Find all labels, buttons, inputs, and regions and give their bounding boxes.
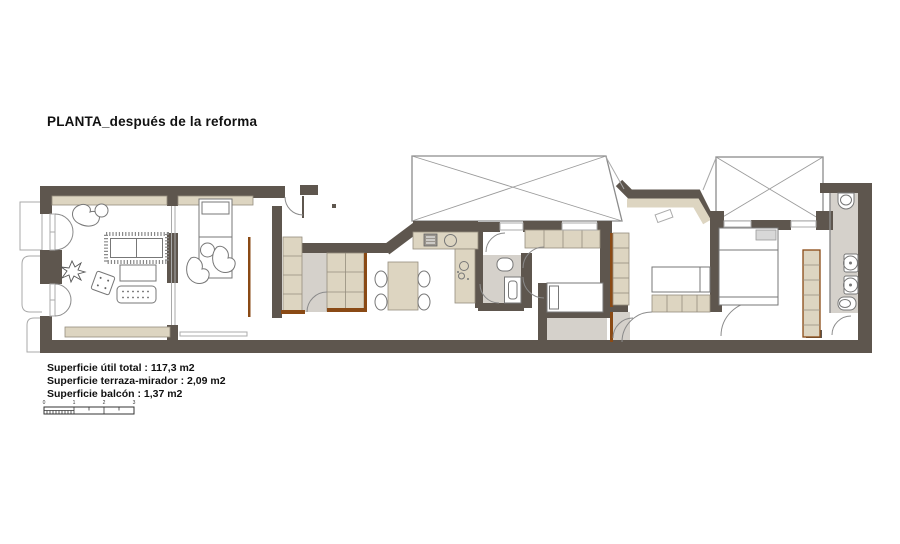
bedroom1-furniture xyxy=(187,199,236,283)
legend-line-terraza: Superficie terraza-mirador : 2,09 m2 xyxy=(47,375,226,388)
pouf xyxy=(91,271,115,295)
chair xyxy=(418,294,430,310)
living-wall-cabinet xyxy=(52,196,167,205)
bed xyxy=(547,283,603,312)
scale-label-0: 0 xyxy=(43,400,46,406)
bidet xyxy=(838,297,856,310)
legend-line-balcon: Superficie balcón : 1,37 m2 xyxy=(47,388,226,401)
terrace-floor-2 xyxy=(613,312,630,342)
living-bottom-cabinet xyxy=(65,327,170,337)
light-well-1 xyxy=(412,156,622,221)
legend-line-total: Superficie útil total : 117,3 m2 xyxy=(47,362,226,375)
bath1-door-top-arc xyxy=(486,233,505,252)
mirador-window xyxy=(655,210,673,223)
pillow xyxy=(756,230,776,240)
hall-closet-1 xyxy=(281,237,305,314)
plant-icon xyxy=(61,261,85,282)
ensuite-door-arc xyxy=(832,316,851,335)
bedroom2-furniture xyxy=(547,283,603,312)
terraza-mirador xyxy=(606,157,716,222)
bedroom3-furniture xyxy=(652,267,710,292)
balcony-top xyxy=(20,202,42,250)
chair xyxy=(375,294,387,310)
french-door-1 xyxy=(50,214,73,250)
sofa xyxy=(106,234,167,262)
bottom-wall xyxy=(40,340,872,353)
ensuite-floor xyxy=(830,193,858,313)
column xyxy=(332,204,336,208)
master-wardrobe xyxy=(803,250,820,337)
washbasin xyxy=(497,258,513,271)
bedroom1-sliding-panel xyxy=(248,237,251,317)
french-door-2 xyxy=(50,284,71,316)
entry-door-arc xyxy=(285,197,303,215)
right-wall xyxy=(858,183,872,353)
corridor-floor xyxy=(302,252,327,312)
bedroom2-wardrobe xyxy=(525,230,600,248)
living-room-furniture xyxy=(61,204,167,303)
stove-icon xyxy=(424,234,437,246)
floor-plan: 0 1 2 3 xyxy=(0,0,900,544)
bench xyxy=(117,286,156,303)
floor-plan-figure: PLANTA_después de la reforma xyxy=(0,0,900,544)
light-well-2 xyxy=(716,157,823,221)
kitchen-wall xyxy=(413,221,478,232)
master-bedroom-furniture xyxy=(719,228,778,305)
area-legend: Superficie útil total : 117,3 m2 Superfi… xyxy=(47,362,226,401)
side-table xyxy=(95,204,108,217)
bed xyxy=(652,267,710,292)
scale-bar: 0 1 2 3 xyxy=(43,400,136,414)
hall-closet-2 xyxy=(327,253,367,312)
bedroom3-bed-storage xyxy=(652,295,710,312)
kitchen-counter xyxy=(413,232,478,249)
chair xyxy=(418,271,430,287)
balcony-bottom xyxy=(22,256,42,312)
terrace-floor xyxy=(545,318,607,340)
master-door-arc xyxy=(721,302,755,336)
dining-table xyxy=(388,262,418,310)
chair xyxy=(375,271,387,287)
bedroom1-ledge xyxy=(180,332,247,336)
coffee-table xyxy=(120,265,156,281)
